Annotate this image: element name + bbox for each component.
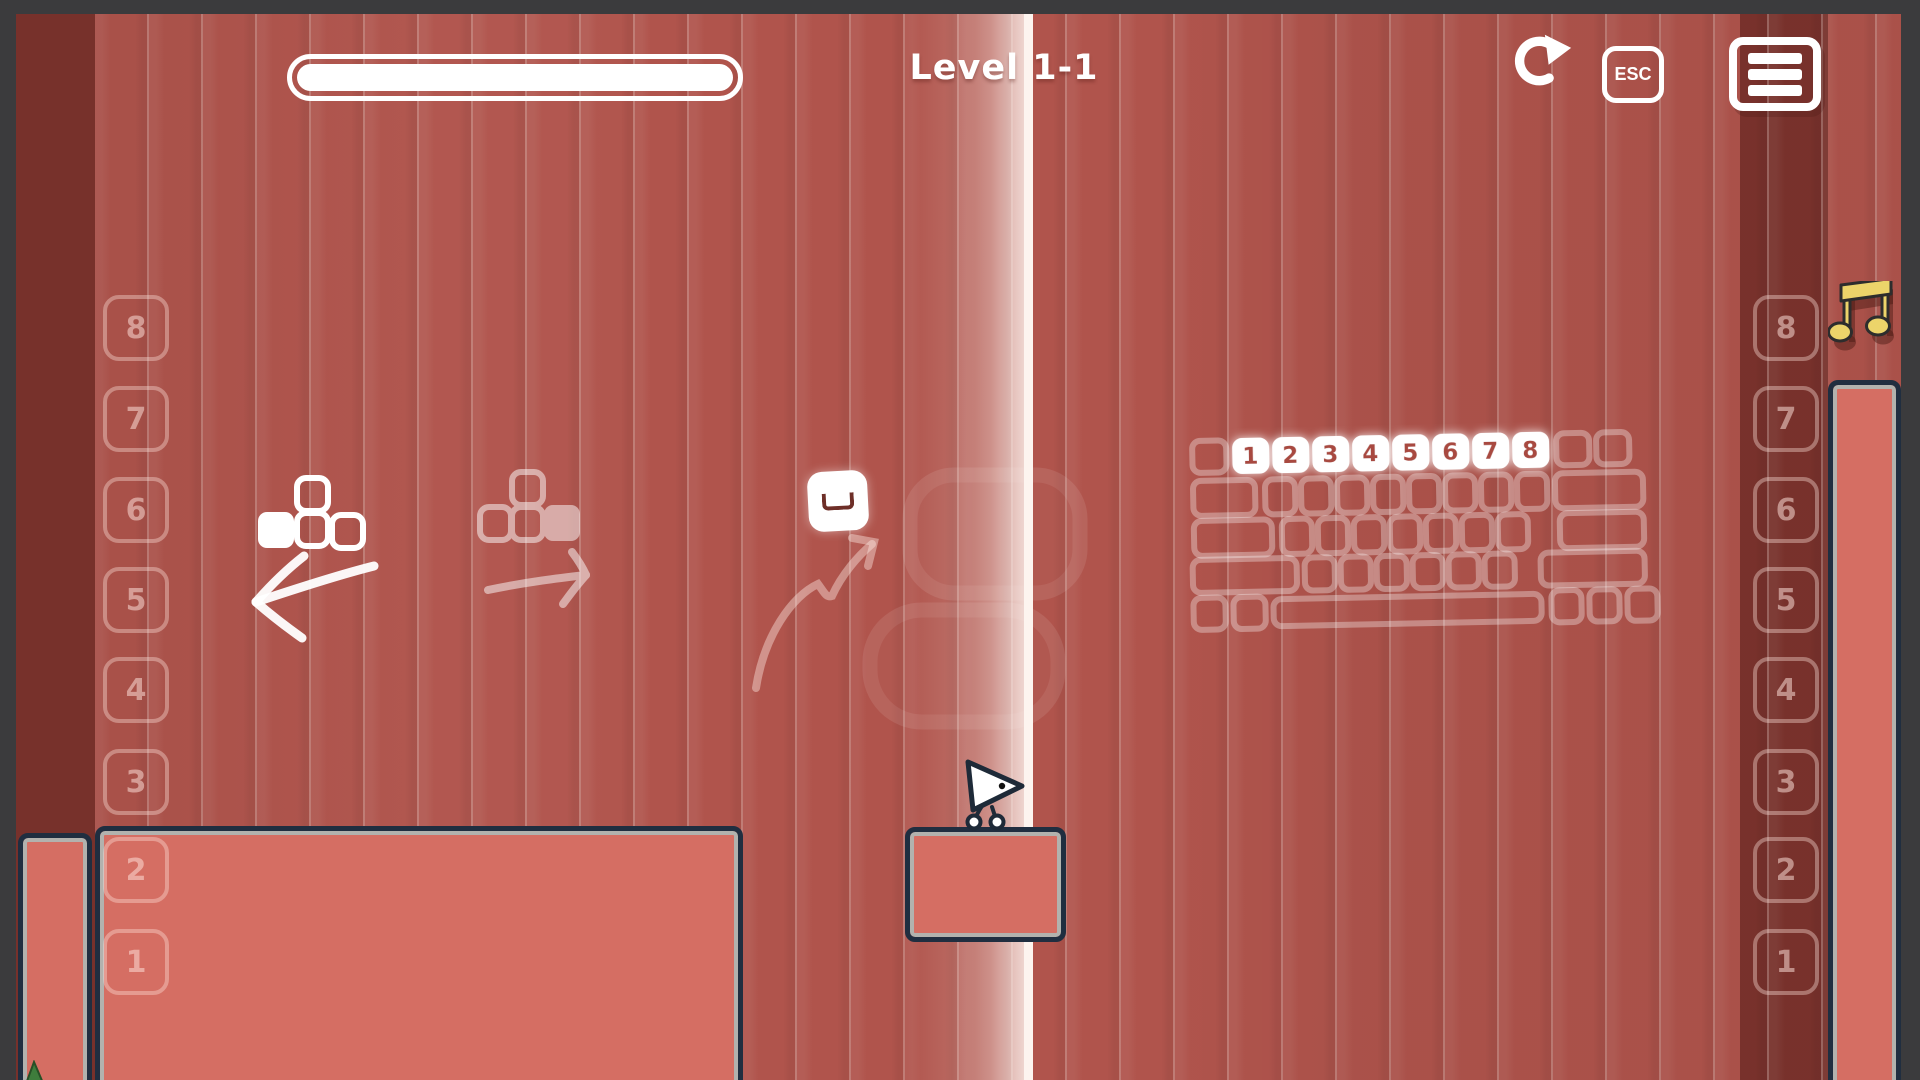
plant-sprout xyxy=(22,1060,48,1080)
left-scale-key-5: 5 xyxy=(103,567,169,633)
flag-eye xyxy=(999,783,1005,789)
platform-right-tall xyxy=(1828,380,1901,1080)
menu-button[interactable] xyxy=(1729,37,1821,111)
frame-top xyxy=(0,0,1920,14)
frame-right xyxy=(1901,0,1920,1080)
level-title: Level 1-1 xyxy=(904,48,1104,88)
right-scale-key-1: 1 xyxy=(1753,929,1819,995)
right-scale-key-5: 5 xyxy=(1753,567,1819,633)
right-scale-key-8: 8 xyxy=(1753,295,1819,361)
frame-left xyxy=(0,0,16,1080)
platform-bottom-wide xyxy=(95,826,743,1080)
left-scale-key-6: 6 xyxy=(103,477,169,543)
move-left-hint xyxy=(246,468,416,653)
arrow-keys-left-pressed-icon xyxy=(258,478,363,548)
left-scale-key-8: 8 xyxy=(103,295,169,361)
left-scale-key-3: 3 xyxy=(103,749,169,815)
restart-button[interactable] xyxy=(1513,31,1573,91)
left-scale-key-1: 1 xyxy=(103,929,169,995)
right-scale-key-6: 6 xyxy=(1753,477,1819,543)
level-progress-fill xyxy=(297,64,733,91)
key-1-label: 1 xyxy=(1242,444,1259,470)
platform-flag-block xyxy=(905,827,1066,942)
key-5-label: 5 xyxy=(1402,440,1419,466)
restart-icon xyxy=(1520,35,1572,81)
flag-body xyxy=(968,762,1022,810)
level-progress-bar xyxy=(287,54,743,101)
platform-bottom-left-narrow xyxy=(18,833,92,1080)
hand-drawn-left-arrow-icon xyxy=(256,556,374,638)
right-scale-key-3: 3 xyxy=(1753,749,1819,815)
esc-label: ESC xyxy=(1614,64,1651,85)
left-scale-key-4: 4 xyxy=(103,657,169,723)
left-scale-key-2: 2 xyxy=(103,837,169,903)
right-scale-key-2: 2 xyxy=(1753,837,1819,903)
keyboard-hint-number-keys: 1 2 3 4 5 6 7 8 xyxy=(1234,434,1548,473)
keyboard-hint: 1 2 3 4 5 6 7 8 xyxy=(1184,419,1680,649)
right-scale-key-4: 4 xyxy=(1753,657,1819,723)
key-3-label: 3 xyxy=(1322,442,1339,468)
game-window: 1 2 3 4 5 6 7 8 xyxy=(0,0,1920,1080)
player-flag-character xyxy=(960,758,1030,832)
music-note-icon[interactable] xyxy=(1828,281,1898,359)
spacebar-glyph-icon xyxy=(822,492,855,511)
spacebar-key-hint xyxy=(806,469,869,532)
right-scale-key-7: 7 xyxy=(1753,386,1819,452)
key-7-label: 7 xyxy=(1482,439,1499,465)
left-scale-key-7: 7 xyxy=(103,386,169,452)
key-6-label: 6 xyxy=(1442,439,1459,465)
hand-drawn-right-arrow-icon xyxy=(488,552,586,604)
bounce-arc-arrow-icon xyxy=(746,528,906,698)
game-viewport[interactable]: 1 2 3 4 5 6 7 8 xyxy=(16,14,1901,1080)
esc-button[interactable]: ESC xyxy=(1602,46,1664,103)
move-right-hint xyxy=(476,468,651,633)
key-8-label: 8 xyxy=(1522,438,1539,464)
hamburger-icon xyxy=(1748,53,1802,64)
arrow-keys-right-pressed-icon xyxy=(480,472,580,541)
key-4-label: 4 xyxy=(1362,441,1379,467)
key-2-label: 2 xyxy=(1282,443,1299,469)
